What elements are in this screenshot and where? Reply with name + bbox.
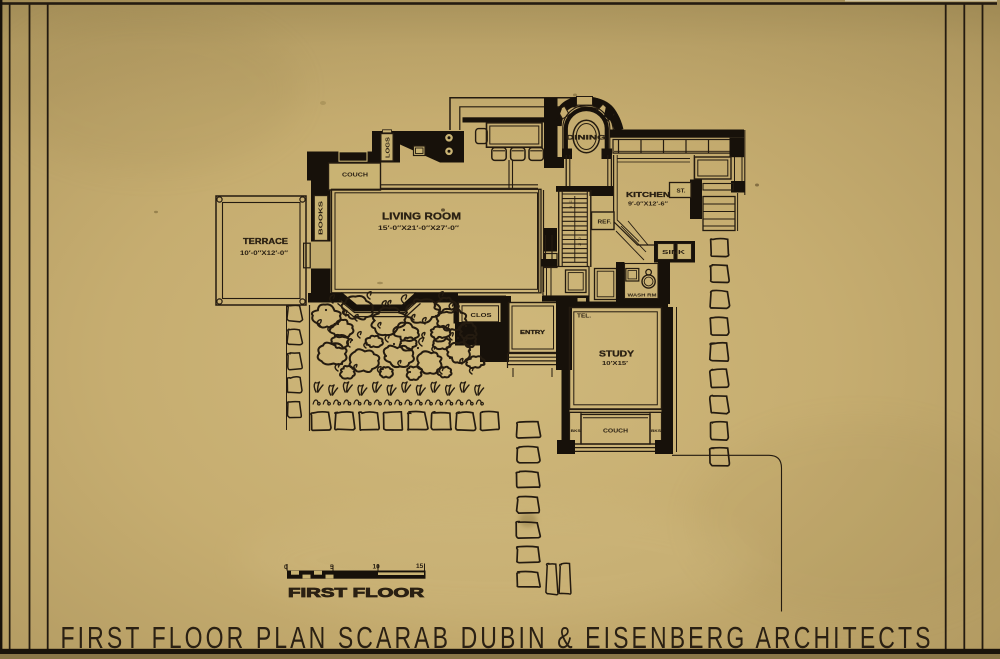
svg-text:STUDY: STUDY bbox=[599, 350, 635, 359]
svg-text:CLOS: CLOS bbox=[471, 313, 492, 319]
svg-text:COUCH: COUCH bbox=[603, 429, 628, 435]
svg-text:BOOKS: BOOKS bbox=[318, 200, 324, 235]
svg-text:ENTRY: ENTRY bbox=[520, 330, 545, 336]
svg-text:9′-0″X12′-6″: 9′-0″X12′-6″ bbox=[628, 202, 669, 208]
svg-text:ST.: ST. bbox=[677, 189, 687, 195]
svg-text:BKS: BKS bbox=[571, 429, 582, 433]
svg-text:10′X15′: 10′X15′ bbox=[602, 361, 629, 367]
svg-text:10′-0″X12′-0″: 10′-0″X12′-0″ bbox=[240, 251, 288, 257]
svg-text:LIVING ROOM: LIVING ROOM bbox=[382, 211, 461, 223]
svg-text:REF.: REF. bbox=[598, 220, 613, 226]
svg-text:N: N bbox=[579, 243, 582, 247]
svg-text:15′-0″X21′-0″X27′-0″: 15′-0″X21′-0″X27′-0″ bbox=[378, 225, 459, 232]
svg-text:KITCHEN: KITCHEN bbox=[626, 192, 670, 199]
svg-text:15: 15 bbox=[416, 563, 424, 570]
svg-text:5: 5 bbox=[330, 564, 334, 571]
svg-text:10: 10 bbox=[373, 564, 381, 571]
svg-text:0: 0 bbox=[284, 564, 288, 571]
svg-text:BKS: BKS bbox=[651, 429, 662, 433]
svg-text:WASH RM: WASH RM bbox=[628, 293, 657, 298]
svg-text:FIRST FLOOR PLAN SCARAB DUBIN: FIRST FLOOR PLAN SCARAB DUBIN & EISENBER… bbox=[60, 621, 930, 654]
svg-text:SINK: SINK bbox=[662, 250, 686, 256]
svg-text:DINING: DINING bbox=[566, 135, 606, 142]
svg-text:D: D bbox=[579, 237, 582, 241]
svg-text:FIRST FLOOR: FIRST FLOOR bbox=[288, 586, 424, 600]
svg-text:TERRACE: TERRACE bbox=[243, 237, 289, 246]
svg-text:U: U bbox=[570, 200, 573, 204]
svg-text:TEL.: TEL. bbox=[577, 314, 592, 320]
svg-text:LOGS: LOGS bbox=[385, 136, 391, 158]
svg-text:COUCH: COUCH bbox=[342, 173, 368, 179]
